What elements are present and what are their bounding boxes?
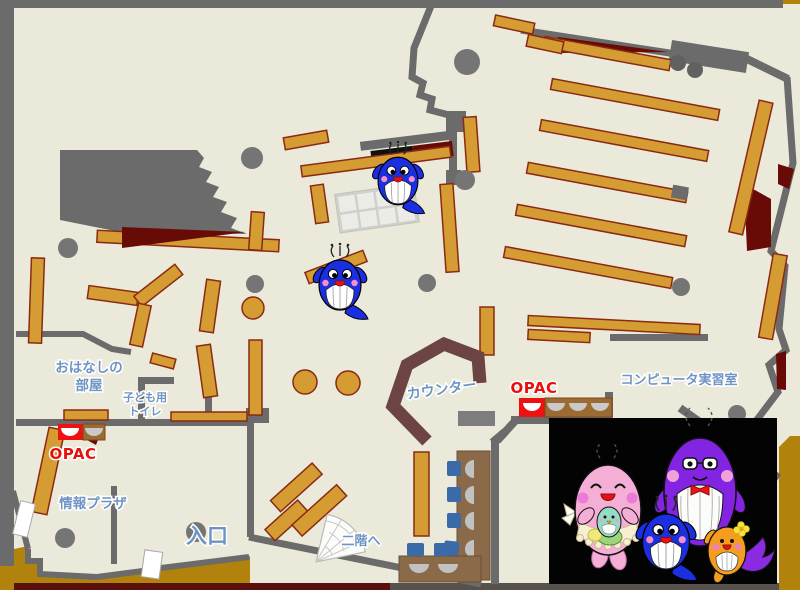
opac-terminals-right xyxy=(519,398,612,417)
label-storytelling-room-line2: 部屋 xyxy=(76,377,103,394)
left-gold-corner xyxy=(0,566,14,590)
label-computer-room: コンピュータ実習室 xyxy=(620,372,737,388)
label-storytelling-room-line1: おはなしの xyxy=(55,360,123,376)
left-wall-band xyxy=(0,0,14,566)
label-entrance: 入口 xyxy=(186,524,228,548)
bottom-maroon-strip xyxy=(0,583,390,590)
floor-map-canvas: おはなしの 部屋 子ども用 トイレ OPAC 情報プラザ 入口 二階へ カウンタ… xyxy=(0,0,800,590)
label-info-plaza: 情報プラザ xyxy=(59,495,127,512)
label-opac-left: OPAC xyxy=(50,445,97,463)
mascot-family-photo xyxy=(549,408,777,584)
label-kids-toilet-line1: 子ども用 xyxy=(123,391,167,404)
label-opac-right: OPAC xyxy=(511,379,558,397)
label-to-second-floor: 二階へ xyxy=(341,533,380,549)
label-kids-toilet-line2: トイレ xyxy=(129,405,162,418)
library-floor-map: おはなしの 部屋 子ども用 トイレ OPAC 情報プラザ 入口 二階へ カウンタ… xyxy=(0,0,800,590)
bottom-gray-strip xyxy=(390,583,779,590)
opac-terminals-left xyxy=(58,424,105,440)
